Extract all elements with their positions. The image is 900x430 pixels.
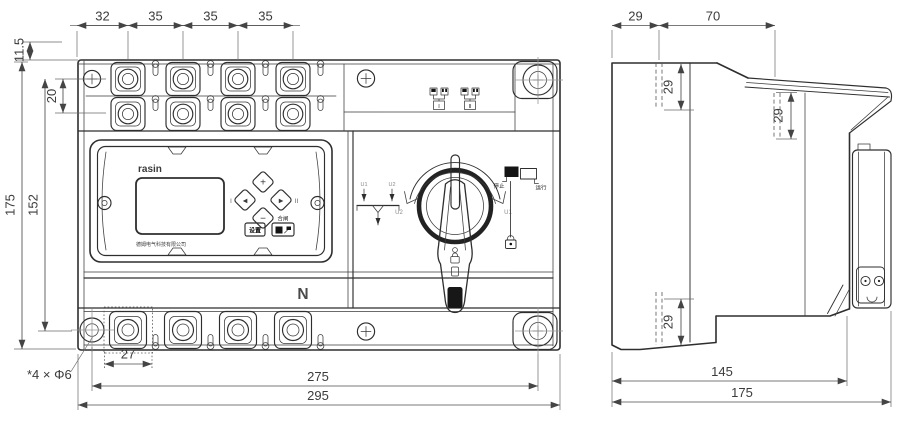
stop-run-legend: 停止 运行	[493, 167, 547, 249]
terminal-lug	[165, 312, 202, 349]
close-button	[272, 223, 294, 236]
schematic-source2-label: U2	[388, 182, 395, 188]
brand-logo: rasin	[138, 164, 162, 175]
dim-step-front: 29	[771, 108, 786, 122]
right-arrow-key-icon: ▶	[279, 199, 284, 205]
technical-drawing-canvas: rasin 德姆电气科技有限公司 + − ◀ ▶ I II 合闸 设置	[0, 0, 900, 430]
terminal-lug	[166, 63, 200, 96]
dim-rear-depth: 29	[628, 9, 642, 24]
front-view: rasin 德姆电气科技有限公司 + − ◀ ▶ I II 合闸 设置	[71, 57, 563, 354]
dim-pitch-35c: 35	[258, 9, 272, 24]
terminal-lug	[220, 312, 257, 349]
terminal-lug	[275, 312, 312, 349]
dim-hole-span: 275	[307, 369, 329, 384]
dim-terminal-width: 27	[121, 347, 135, 362]
rotary-switch: U2 U1	[395, 155, 512, 313]
controller-panel: rasin 德姆电气科技有限公司 + − ◀ ▶ I II 合闸 设置	[90, 140, 332, 262]
terminal-lug	[111, 98, 145, 131]
lcd-screen	[136, 178, 224, 234]
dim-pitch-35a: 35	[148, 9, 162, 24]
marker-source2: II	[295, 199, 299, 205]
terminal-lug	[276, 98, 310, 131]
plus-key-icon: +	[260, 178, 266, 189]
schematic-source1-label: U1	[360, 182, 367, 188]
side-case-outline	[612, 63, 849, 350]
handle-tip	[448, 287, 463, 308]
run-state-square	[521, 169, 537, 180]
stop-label: 停止	[493, 182, 505, 190]
dim-body-depth: 145	[711, 364, 733, 379]
screw-icon	[357, 70, 374, 87]
dial-right-source-label: U1	[504, 210, 512, 216]
lock-icon	[506, 236, 517, 249]
marker-source1: I	[230, 199, 232, 205]
dim-pitch-35b: 35	[203, 9, 217, 24]
neutral-terminal-label: N	[297, 286, 308, 303]
terminal-row-bottom	[110, 312, 324, 350]
run-label: 运行	[535, 184, 547, 192]
screw-icon	[357, 323, 374, 340]
indicator-symbol-1: I	[430, 88, 448, 110]
company-name: 德姆电气科技有限公司	[136, 241, 186, 248]
mounting-hole-note: *4 × Φ6	[27, 367, 72, 382]
dim-pitch-32: 32	[95, 9, 109, 24]
transfer-schematic-icon: U1 U2	[357, 182, 399, 225]
terminal-lug	[276, 63, 310, 96]
terminal-lug	[221, 63, 255, 96]
close-button-label: 合闸	[277, 215, 288, 223]
ats-dimension-drawing: rasin 德姆电气科技有限公司 + − ◀ ▶ I II 合闸 设置	[0, 0, 900, 430]
left-arrow-key-icon: ◀	[243, 199, 248, 205]
terminal-shield-profile	[853, 144, 892, 308]
dim-step-bottom: 29	[661, 315, 676, 329]
terminal-lug	[110, 312, 147, 349]
stop-state-square	[505, 167, 519, 178]
indicator-label-1: I	[438, 104, 440, 110]
settings-button-label: 设置	[249, 226, 261, 234]
keyhole-slots-top	[152, 61, 324, 111]
dim-row-gap: 20	[44, 89, 59, 103]
indicator-label-2: II	[468, 104, 472, 110]
side-view	[612, 63, 892, 350]
terminal-lug	[166, 98, 200, 131]
dim-step-top: 29	[661, 80, 676, 94]
dim-edge-offset: 11.5	[12, 38, 27, 62]
dim-width: 295	[307, 388, 329, 403]
terminal-lug	[111, 63, 145, 96]
dim-top-width: 70	[706, 9, 720, 24]
indicator-symbol-2: II	[461, 88, 479, 110]
terminal-lug	[221, 98, 255, 131]
dial-left-source-label: U2	[395, 210, 403, 216]
dim-hole-height: 152	[26, 194, 41, 216]
dim-height: 175	[3, 194, 18, 216]
dim-total-depth: 175	[731, 385, 753, 400]
